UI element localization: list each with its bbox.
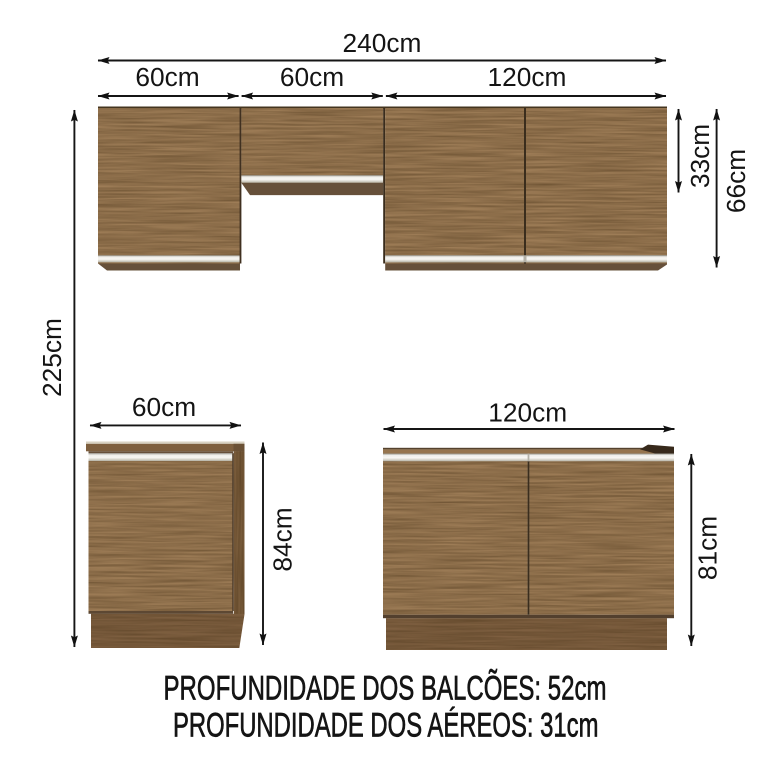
- svg-text:81cm: 81cm: [693, 516, 723, 580]
- svg-text:60cm: 60cm: [280, 62, 344, 92]
- svg-text:120cm: 120cm: [488, 398, 567, 428]
- svg-text:60cm: 60cm: [135, 62, 199, 92]
- svg-text:33cm: 33cm: [685, 124, 715, 188]
- svg-text:PROFUNDIDADE DOS AÉREOS: 31cm: PROFUNDIDADE DOS AÉREOS: 31cm: [173, 706, 599, 744]
- svg-text:60cm: 60cm: [132, 392, 196, 422]
- svg-text:120cm: 120cm: [488, 62, 567, 92]
- svg-text:84cm: 84cm: [268, 507, 298, 571]
- svg-text:66cm: 66cm: [721, 149, 751, 213]
- svg-text:225cm: 225cm: [37, 318, 67, 397]
- svg-text:PROFUNDIDADE DOS BALCÕES: 52cm: PROFUNDIDADE DOS BALCÕES: 52cm: [164, 668, 607, 707]
- svg-text:240cm: 240cm: [343, 28, 422, 58]
